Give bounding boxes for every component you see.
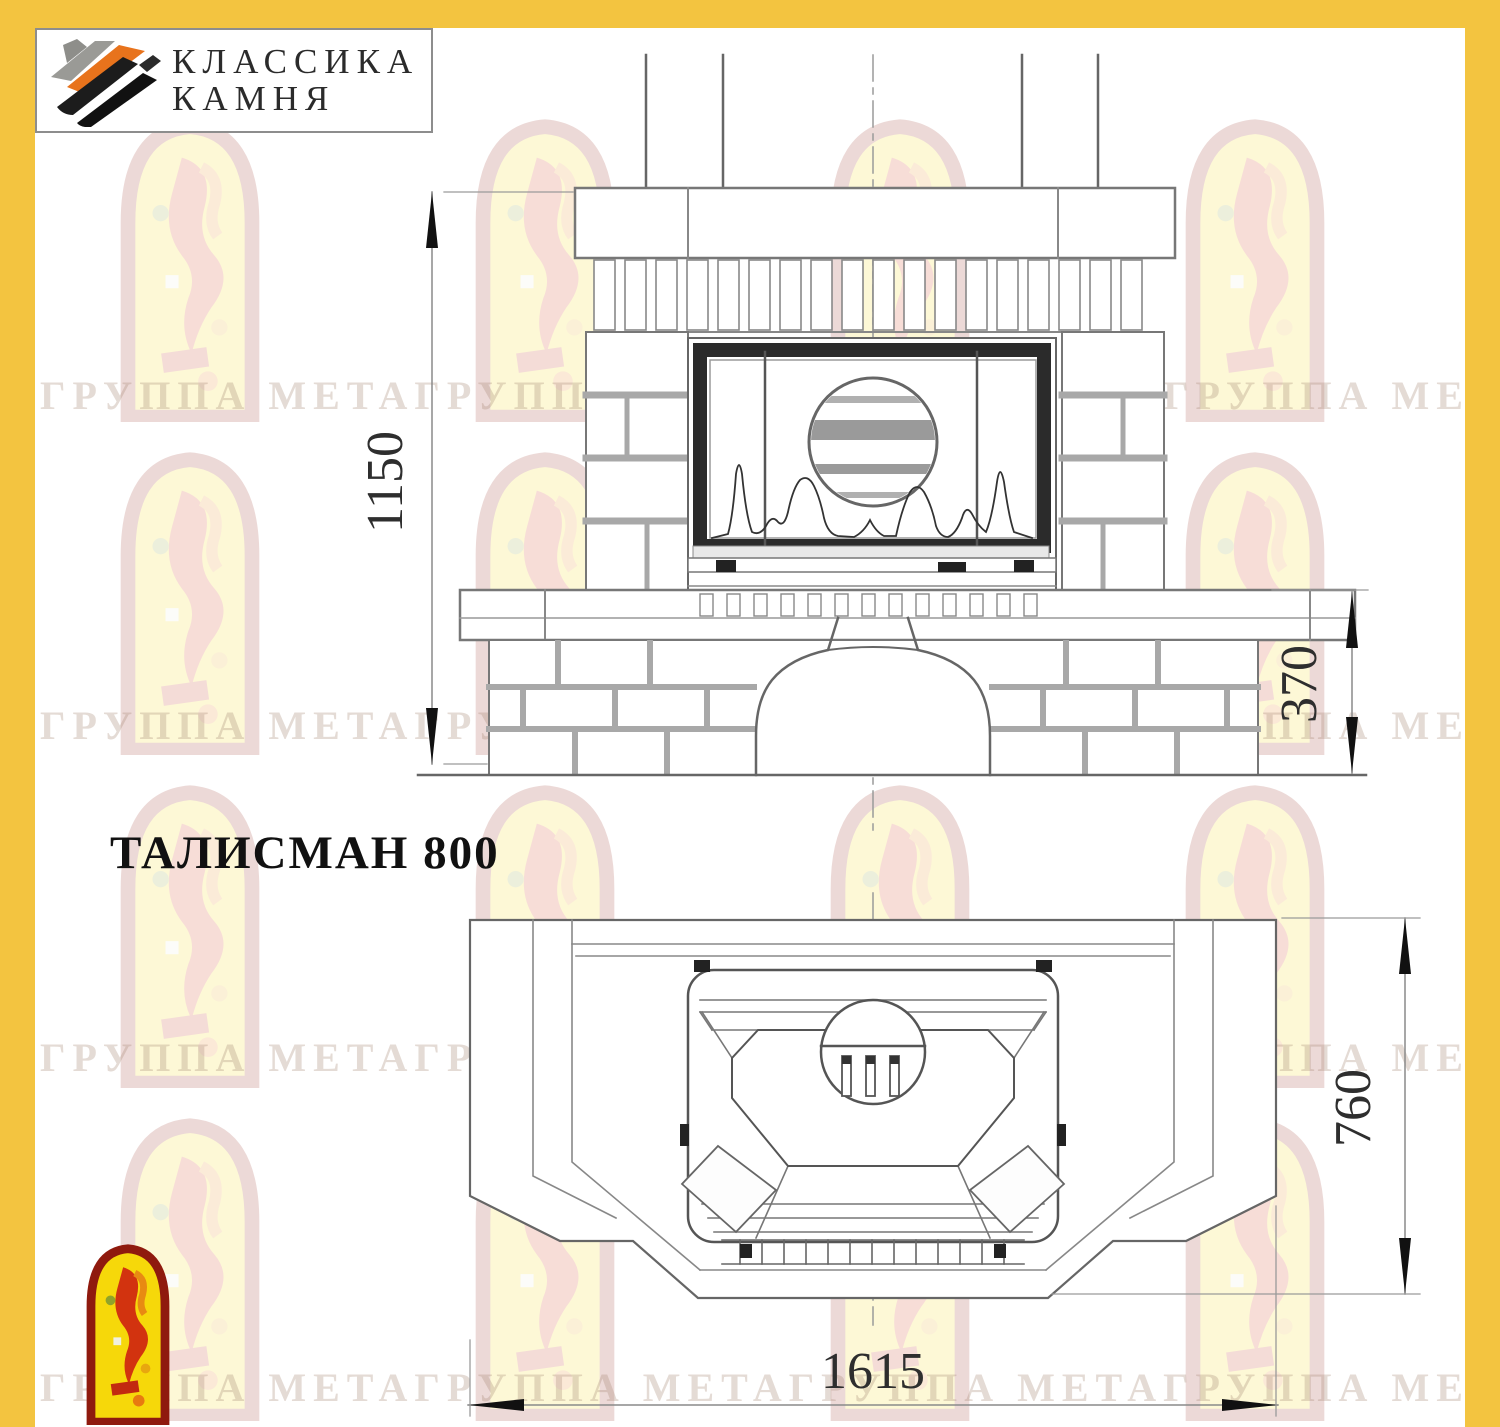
page-title: ТАЛИСМАН 800 — [110, 826, 500, 880]
dimension-arrow — [426, 708, 438, 764]
meta-arch-logo — [83, 1240, 173, 1425]
dimension-front-height-label: 1150 — [357, 431, 414, 533]
door-handle — [938, 562, 966, 572]
page-frame-left — [0, 0, 35, 1427]
brand-logo-box: КЛАССИКА КАМНЯ — [35, 28, 433, 133]
page-frame-top — [0, 0, 1500, 28]
technical-drawing: 1150 370 — [0, 0, 1500, 1427]
dimension-arrow — [468, 1399, 524, 1411]
firebox — [688, 338, 1056, 590]
dimension-plan-depth-label: 760 — [1325, 1069, 1382, 1147]
dimension-plan-width-label: 1615 — [821, 1343, 925, 1400]
dimension-arrow — [1222, 1399, 1278, 1411]
right-brick-wall — [1062, 332, 1164, 590]
front-view: 1150 370 — [357, 55, 1368, 830]
brand-name-line2: КАМНЯ — [172, 81, 419, 118]
left-brick-wall — [586, 332, 688, 590]
dimension-bench-height-label: 370 — [1271, 645, 1328, 723]
dimension-arrow — [426, 192, 438, 248]
page: ГРУППА МЕТАГРУППА МЕТАГРУППА МЕТАГРУППА … — [0, 0, 1500, 1427]
page-frame-right — [1465, 0, 1500, 1427]
brand-name-line1: КЛАССИКА — [172, 44, 419, 81]
striped-sphere-decoration — [805, 378, 941, 506]
dimension-arrow — [1399, 918, 1411, 974]
dimension-arrow — [1399, 1238, 1411, 1294]
base-with-arch — [418, 618, 1366, 775]
smoke-outlet-plan — [821, 1000, 925, 1104]
stone-slabs-icon — [43, 35, 168, 127]
bench-shelf — [460, 590, 1355, 640]
plan-view: 760 1615 — [468, 893, 1420, 1416]
dimension-arrow — [1346, 717, 1358, 773]
